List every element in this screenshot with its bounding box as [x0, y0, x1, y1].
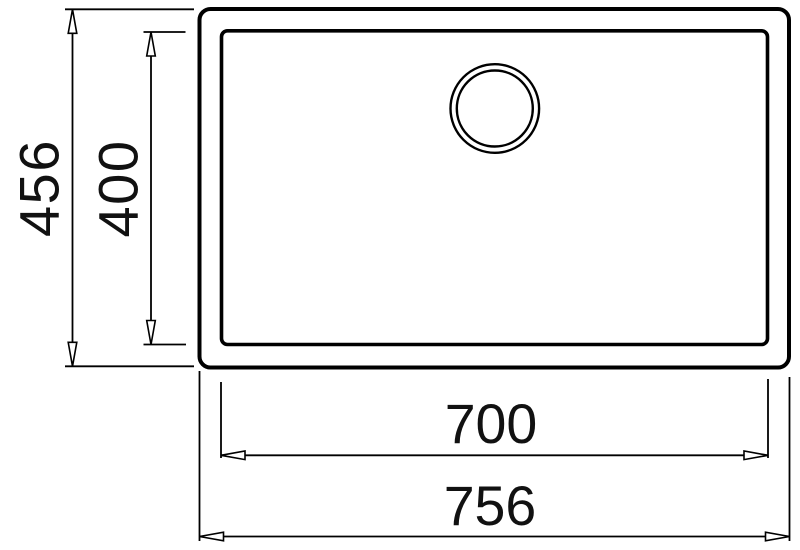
svg-text:400: 400: [87, 140, 150, 238]
svg-text:700: 700: [445, 393, 538, 455]
svg-text:456: 456: [8, 139, 71, 237]
svg-text:756: 756: [444, 475, 537, 537]
